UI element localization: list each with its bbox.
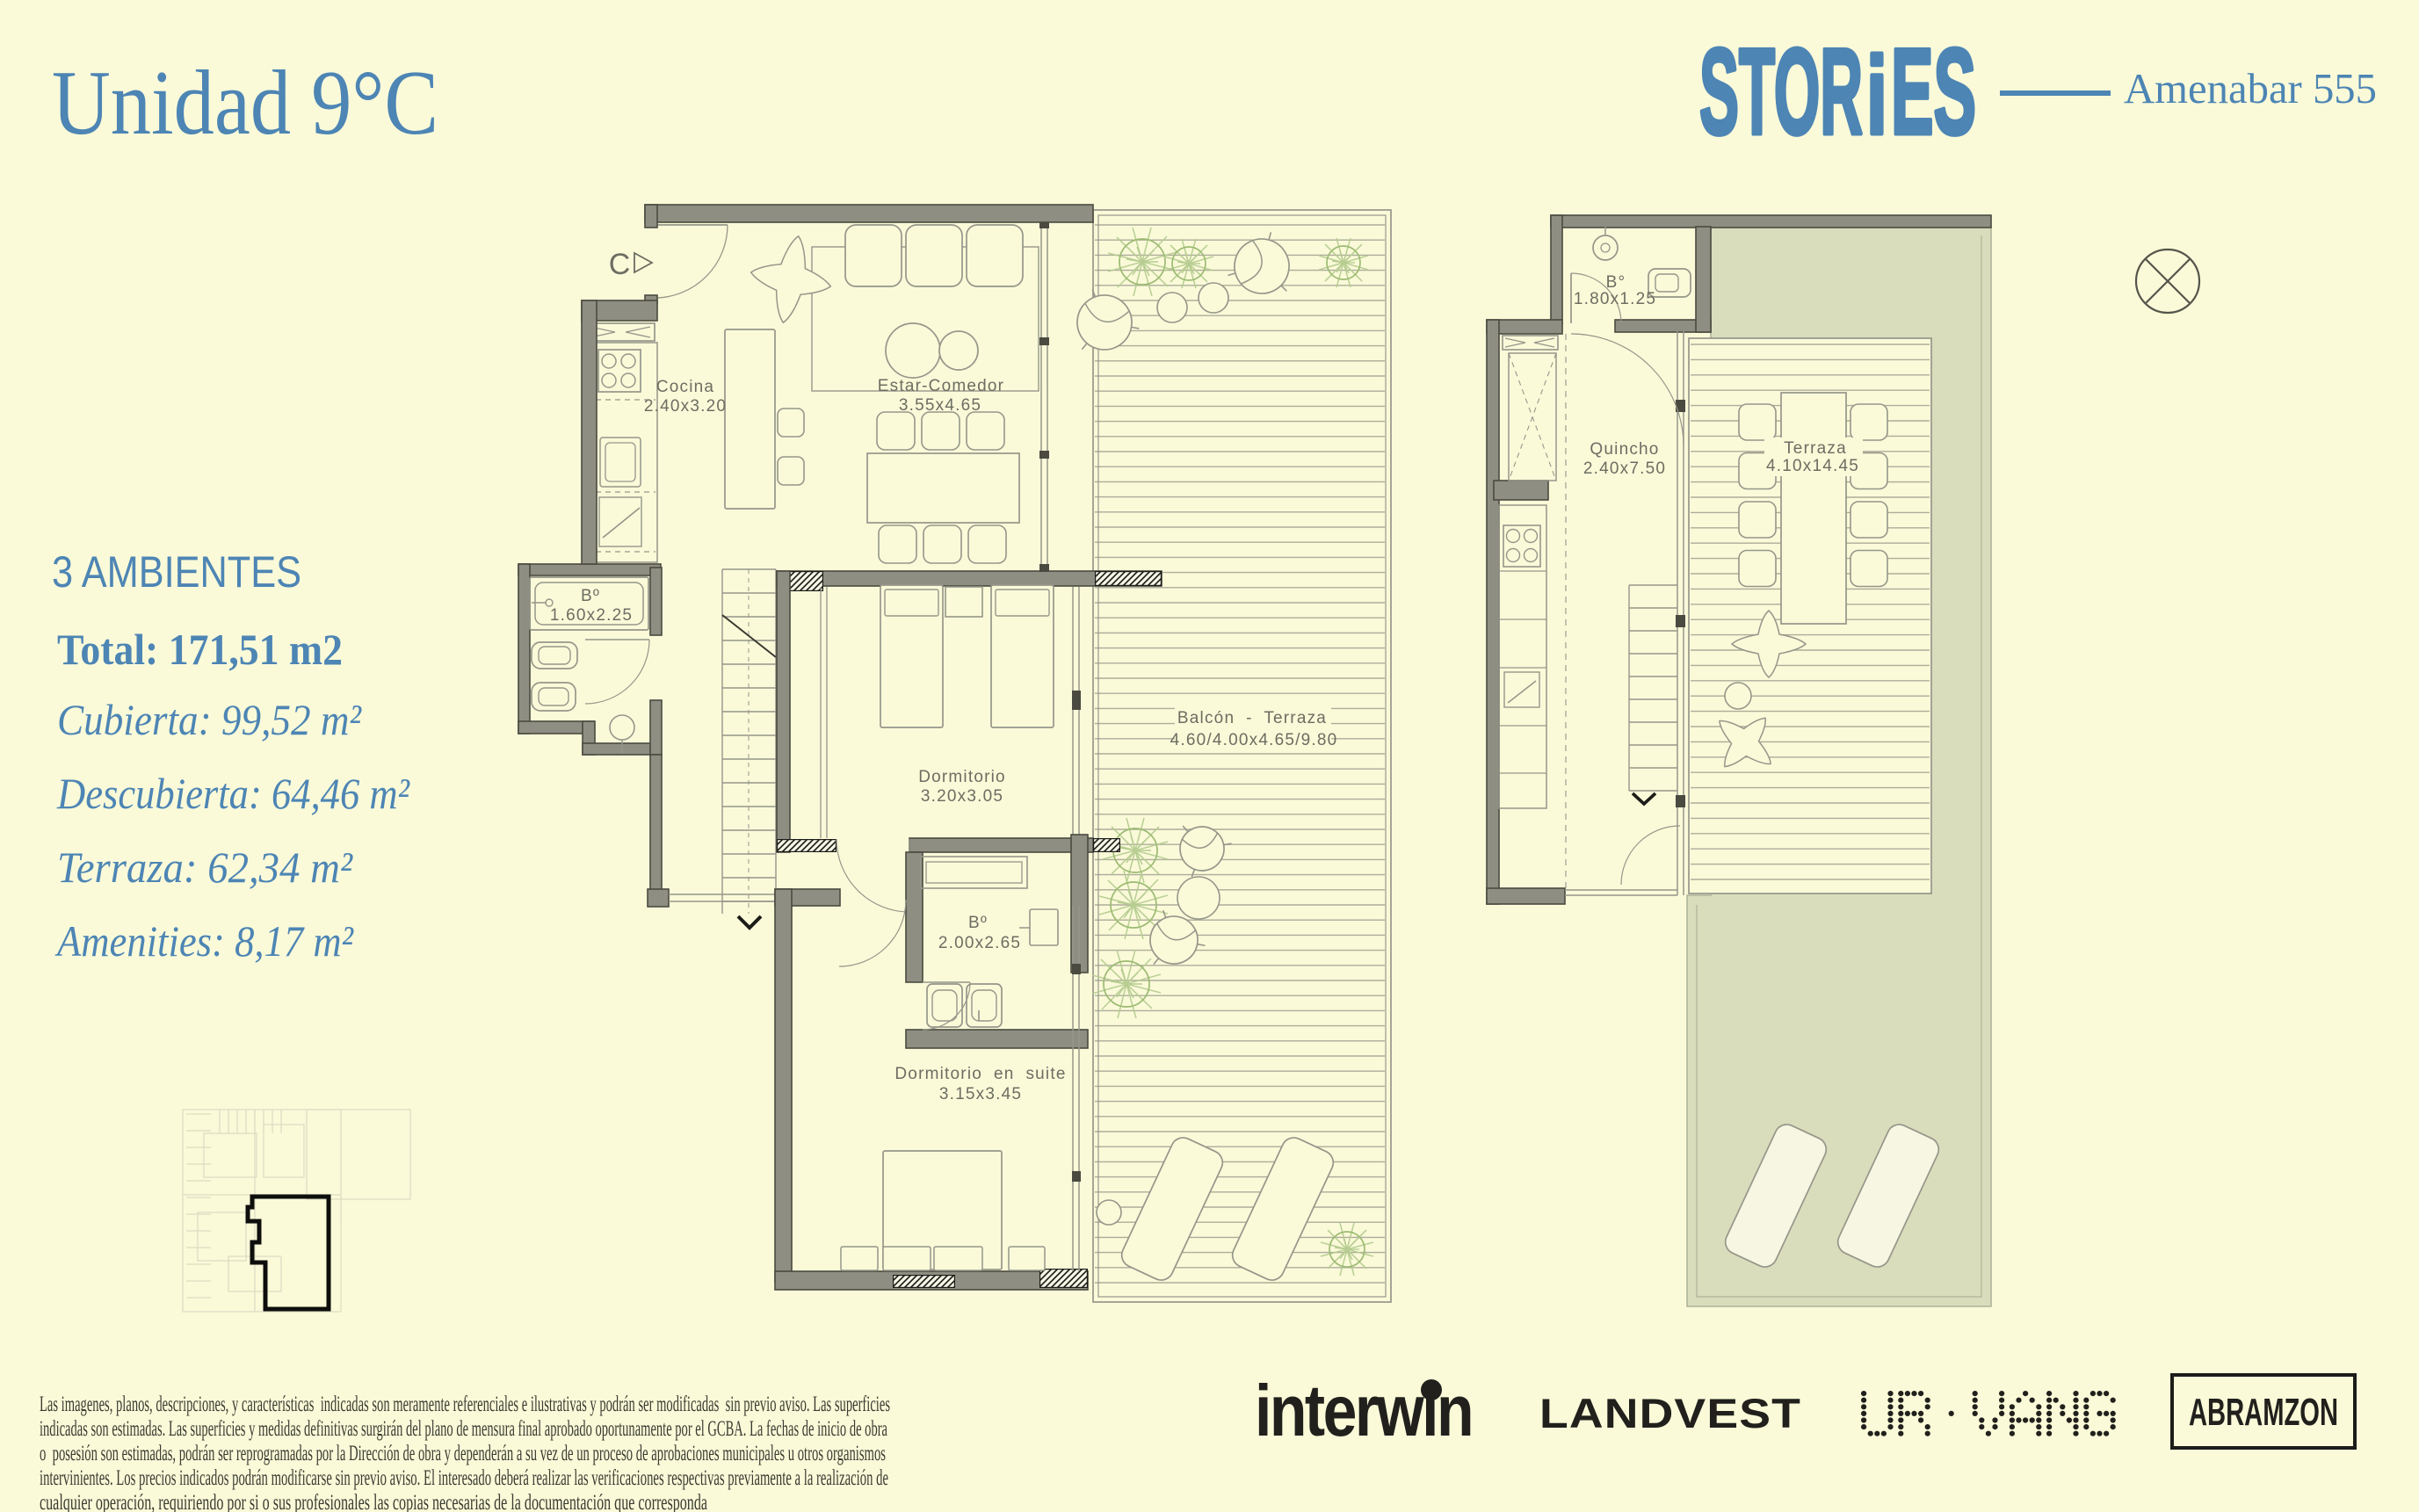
svg-text:Descubierta: 64,46 m²: Descubierta: 64,46 m² — [56, 769, 410, 818]
svg-text:Las imagenes, planos, descripc: Las imagenes, planos, descripciones, y c… — [40, 1391, 890, 1416]
svg-text:2.00x2.65: 2.00x2.65 — [938, 934, 1021, 952]
svg-text:3 AMBIENTES: 3 AMBIENTES — [52, 547, 301, 597]
svg-text:Dormitorio: Dormitorio — [918, 768, 1006, 786]
svg-text:Cubierta: 99,52 m²: Cubierta: 99,52 m² — [57, 695, 362, 744]
svg-text:2.40x7.50: 2.40x7.50 — [1583, 459, 1666, 478]
svg-text:3.55x4.65: 3.55x4.65 — [899, 396, 981, 415]
svg-text:interwin: interwin — [1255, 1370, 1472, 1451]
svg-text:ES: ES — [1891, 24, 1976, 160]
svg-text:Bº: Bº — [968, 914, 988, 932]
svg-text:cualquier operación, requirien: cualquier operación, requiriendo por si … — [40, 1489, 707, 1512]
svg-text:B°: B° — [1606, 273, 1626, 292]
svg-text:3.15x3.45: 3.15x3.45 — [939, 1085, 1022, 1103]
svg-text:Quincho: Quincho — [1590, 440, 1659, 459]
svg-text:Cocina: Cocina — [656, 378, 714, 396]
svg-text:o posesión son estimadas, pod: o posesión son estimadas, podrán ser rep… — [40, 1440, 886, 1465]
svg-text:1.80x1.25: 1.80x1.25 — [1574, 290, 1656, 308]
svg-text:Terraza: 62,34 m²: Terraza: 62,34 m² — [57, 843, 353, 892]
svg-text:Terraza: Terraza — [1784, 439, 1847, 458]
svg-text:STOR: STOR — [1699, 24, 1863, 160]
svg-text:Unidad 9°C: Unidad 9°C — [52, 51, 438, 154]
svg-text:4.10x14.45: 4.10x14.45 — [1766, 457, 1859, 475]
svg-text:Total: 171,51 m2: Total: 171,51 m2 — [57, 625, 343, 674]
svg-text:Amenabar 555: Amenabar 555 — [2124, 64, 2377, 112]
svg-text:1.60x2.25: 1.60x2.25 — [550, 606, 633, 625]
svg-text:ABRAMZON: ABRAMZON — [2189, 1391, 2338, 1434]
svg-text:i: i — [1866, 35, 1887, 157]
svg-text:Dormitorio en suite: Dormitorio en suite — [894, 1065, 1066, 1083]
svg-text:indicadas son estimadas. Las s: indicadas son estimadas. Las superficies… — [40, 1415, 887, 1441]
svg-text:C: C — [609, 248, 631, 281]
svg-text:3.20x3.05: 3.20x3.05 — [921, 787, 1003, 806]
svg-text:LANDVEST: LANDVEST — [1539, 1390, 1801, 1436]
svg-text:Balcón - Terraza: Balcón - Terraza — [1177, 709, 1327, 727]
svg-text:4.60/4.00x4.65/9.80: 4.60/4.00x4.65/9.80 — [1170, 731, 1338, 749]
svg-text:Amenities: 8,17 m²: Amenities: 8,17 m² — [54, 916, 354, 966]
svg-text:Estar-Comedor: Estar-Comedor — [878, 377, 1004, 395]
svg-text:intervinientes. Los precios in: intervinientes. Los precios indicados po… — [40, 1465, 888, 1490]
svg-text:Bº: Bº — [581, 587, 600, 605]
svg-text:2.40x3.20: 2.40x3.20 — [644, 397, 727, 416]
